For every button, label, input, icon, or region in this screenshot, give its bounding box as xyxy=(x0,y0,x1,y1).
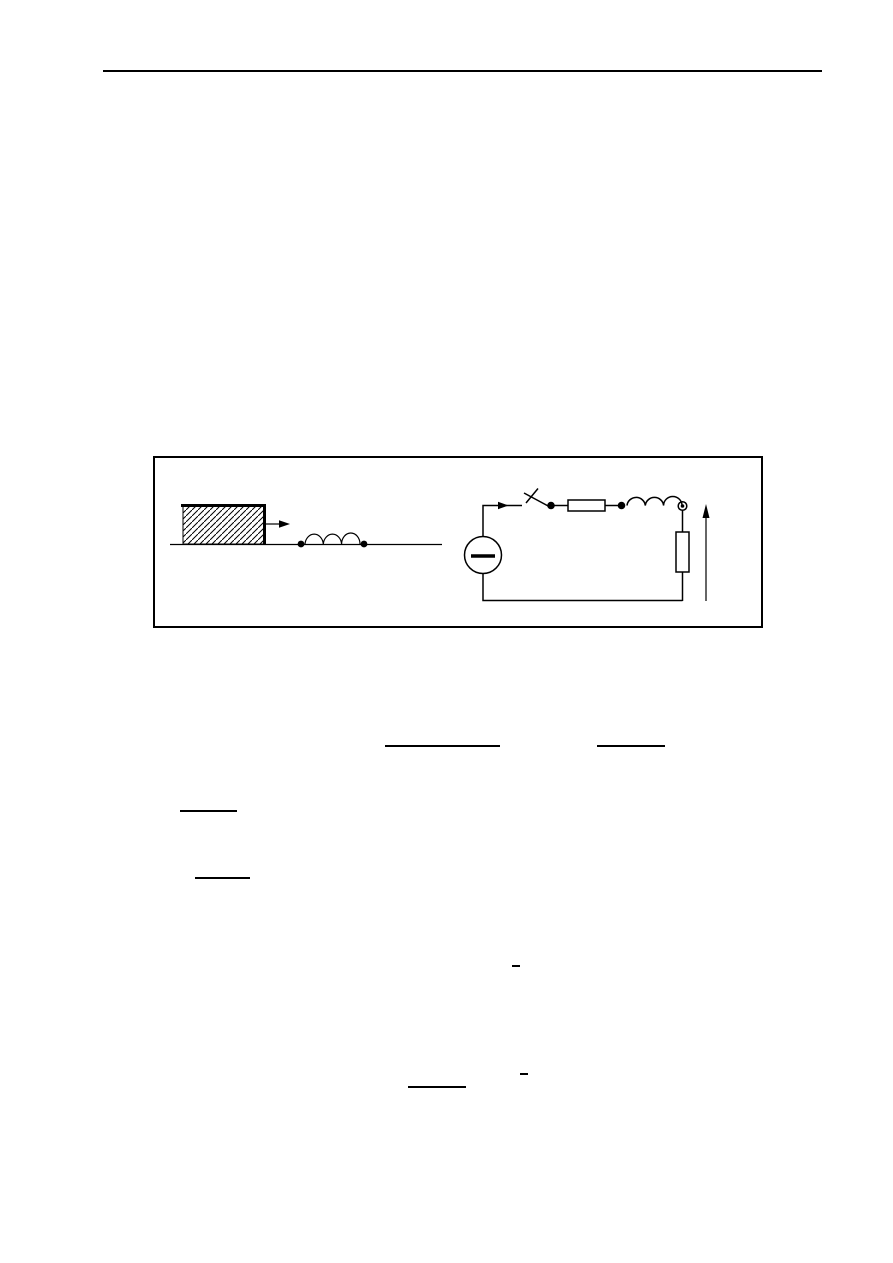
overbar-1 xyxy=(512,965,520,967)
header-rule xyxy=(103,70,822,72)
terminal-dot-right xyxy=(361,541,368,548)
load-resistor-icon xyxy=(676,532,689,572)
force-arrow-icon xyxy=(279,520,290,527)
fraction-bar-2 xyxy=(597,745,665,747)
inductor-terminal-dot xyxy=(618,502,626,510)
series-resistor-icon xyxy=(568,500,605,511)
right-diagram xyxy=(465,489,710,602)
document-page xyxy=(0,0,893,1263)
fraction-bar-5 xyxy=(408,1086,466,1088)
fraction-bar-3 xyxy=(180,810,237,812)
wire-top-left xyxy=(483,506,522,537)
fraction-bar-4 xyxy=(195,877,250,879)
figure-svg xyxy=(153,456,763,628)
overbar-2 xyxy=(520,1073,528,1075)
corner-node-dot xyxy=(681,504,685,508)
voltage-arrow-icon xyxy=(703,504,710,518)
fraction-bar-1 xyxy=(385,745,500,747)
coil-icon xyxy=(305,533,360,544)
wire-bottom xyxy=(483,574,683,601)
hatched-block xyxy=(183,505,264,544)
series-inductor-icon xyxy=(627,497,682,506)
current-arrow-icon xyxy=(498,502,509,509)
left-diagram xyxy=(170,504,442,547)
figure-box xyxy=(153,456,763,628)
terminal-dot-left xyxy=(298,541,305,548)
